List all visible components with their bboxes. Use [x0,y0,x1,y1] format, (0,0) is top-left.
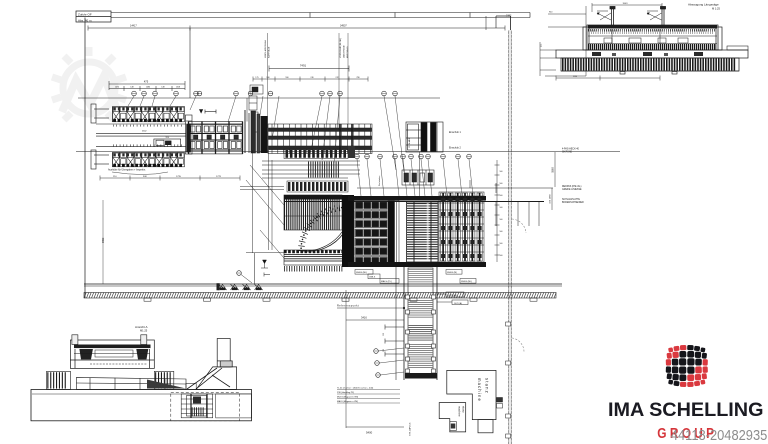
svg-text:14417: 14417 [130,25,137,28]
svg-text:SCHLAGPLATTE: SCHLAGPLATTE [562,198,580,201]
svg-text:71.41 (3 achse : 1404/3.5 ach: 71.41 (3 achse : 1404/3.5 achse + 440) [337,388,374,390]
svg-text:10. StnÄHE: 10. StnÄHE [408,137,411,148]
svg-text:MALS (PL): MALS (PL) [381,280,392,283]
svg-text:5560: 5560 [552,167,555,173]
svg-text:5400: 5400 [366,431,373,435]
svg-text:Drehstation: Drehstation [378,176,381,186]
svg-text:150: 150 [383,333,385,336]
svg-text:VORSCHUB (BL./AL): VORSCHUB (BL./AL) [339,38,342,58]
svg-text:500: 500 [500,183,503,185]
svg-text:M1:25: M1:25 [140,329,148,333]
svg-text:100 1080: 100 1080 [550,194,552,204]
svg-text:KAPPSÄGE: KAPPSÄGE [268,46,271,58]
svg-text:1475: 1475 [115,87,119,89]
svg-text:machine: machine [458,406,462,417]
svg-text:3416: 3416 [361,315,367,319]
svg-text:Zufuhr OF: Zufuhr OF [78,13,92,17]
svg-text:500: 500 [500,195,503,197]
svg-text:m a c h i n e: m a c h i n e [477,378,482,401]
svg-text:1476 (A): 1476 (A) [454,302,462,305]
svg-text:3549: 3549 [623,3,629,5]
svg-text:4-PAS-HECK-40: 4-PAS-HECK-40 [562,148,580,151]
svg-text:742: 742 [335,77,338,79]
svg-text:IMA SCHELLING: IMA SCHELLING [608,400,764,421]
svg-text:148: 148 [161,87,164,89]
svg-text:500: 500 [500,255,503,257]
svg-text:44118-20482935: 44118-20482935 [671,428,768,444]
svg-text:175: 175 [255,77,258,79]
svg-text:9352: 9352 [102,237,105,243]
svg-text:Einschub 1: Einschub 1 [449,131,461,134]
svg-text:SMLB (M): SMLB (M) [447,272,457,274]
svg-text:BODENSCHNEIDER: BODENSCHNEIDER [562,202,584,204]
svg-text:475: 475 [144,80,149,84]
svg-text:7491: 7491 [300,64,307,68]
svg-text:REDPAS (IHE /AL): REDPAS (IHE /AL) [562,185,582,188]
svg-text:1318: 1318 [176,87,180,89]
svg-text:746: 746 [310,77,313,79]
svg-text:500: 500 [500,219,503,221]
svg-text:M 1:25: M 1:25 [712,7,720,11]
svg-text:Absaugung Längssäge: Absaugung Längssäge [688,3,719,7]
svg-text:MALS (Magazin a VM): MALS (Magazin a VM) [337,400,358,403]
svg-text:500: 500 [500,207,503,209]
svg-text:Aushübe für Übergaben + Inspek: Aushübe für Übergaben + Inspektn. [108,169,146,172]
svg-text:STK-LAPLUS: STK-LAPLUS [409,422,412,436]
svg-text:GMLS: GMLS [369,276,376,278]
svg-text:Referenzpunkt: Referenzpunkt [337,304,359,308]
svg-text:148: 148 [130,87,133,89]
svg-text:Einschub 2: Einschub 2 [449,147,461,150]
svg-text:1735: 1735 [176,176,182,178]
svg-text:150: 150 [383,349,385,352]
svg-text:500: 500 [500,231,503,233]
svg-text:34907: 34907 [340,25,347,28]
svg-text:MULS (Magazin b VM): MULS (Magazin b VM) [337,397,358,399]
svg-text:596: 596 [285,77,288,79]
svg-text:SMLB (ML): SMLB (ML) [356,272,367,274]
svg-text:LINKS-ANSCHLAG: LINKS-ANSCHLAG [264,39,267,58]
svg-text:500: 500 [500,171,503,173]
svg-text:1478 (AL): 1478 (AL) [448,294,457,297]
svg-text:GREIFE LINIESSE: GREIFE LINIESSE [562,189,582,191]
svg-text:LÄNGSSÄGE: LÄNGSSÄGE [343,45,346,58]
svg-text:1778: 1778 [216,176,222,178]
svg-text:1480: 1480 [146,87,150,89]
svg-text:P38 (Handling PF): P38 (Handling PF) [337,392,354,394]
svg-text:500: 500 [500,243,503,245]
svg-text:SMLB (ML): SMLB (ML) [461,281,472,283]
svg-text:ANSCHLAG: ANSCHLAG [346,46,349,58]
svg-text:SIKFONE: SIKFONE [562,152,573,154]
svg-text:1116: 1116 [166,137,170,139]
svg-text:Ansicht A: Ansicht A [135,325,148,329]
svg-text:786: 786 [356,77,359,79]
svg-text:s t a n z: s t a n z [485,378,490,393]
svg-text:186: 186 [266,77,269,79]
